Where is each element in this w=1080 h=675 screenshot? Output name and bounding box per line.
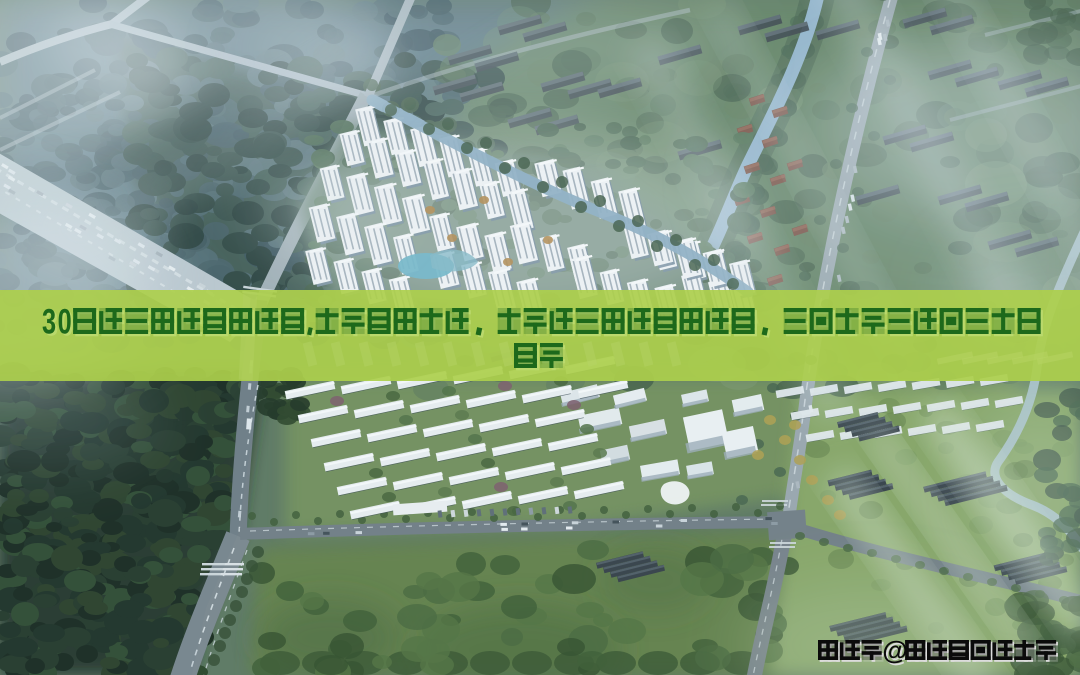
svg-text:3: 3 — [42, 303, 56, 342]
svg-text:@: @ — [882, 635, 907, 665]
svg-text:0: 0 — [58, 303, 72, 342]
